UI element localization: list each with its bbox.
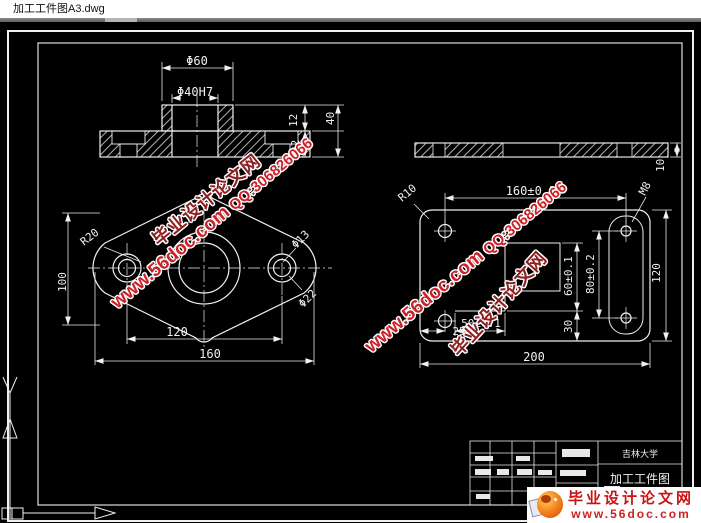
- titleblock-drawing-title: 加工工件图: [610, 472, 670, 486]
- dim-step-height: 12: [287, 114, 300, 127]
- logo-site-name: 毕业设计论文网: [568, 491, 694, 506]
- titleblock-university: 吉林大学: [622, 448, 658, 459]
- dim-thickness: 10: [654, 159, 667, 172]
- dim-plate-corner-radius: R10: [396, 182, 420, 205]
- dim-dia-bore: Φ40H7: [177, 85, 213, 99]
- dim-cbore-dia: Φ22: [296, 287, 319, 310]
- ucs-icon: [2, 377, 115, 519]
- fish-icon: [537, 491, 563, 518]
- dim-step: 30: [562, 320, 575, 333]
- dim-total-height: 40: [324, 112, 337, 125]
- fish-book-icon: [529, 488, 563, 522]
- brand-logo: 毕业设计论文网 www.56doc.com: [527, 487, 701, 523]
- dim-plate-height: 120: [650, 263, 663, 283]
- dim-thread: M8: [636, 180, 654, 198]
- dim-plan-width: 160: [199, 347, 221, 361]
- plate-section-view: [415, 143, 668, 157]
- dim-plan-height: 100: [56, 272, 69, 292]
- dim-pocket-height: 60±0.1: [562, 256, 575, 296]
- fish-eye: [554, 498, 557, 501]
- dim-plate-width: 200: [523, 350, 545, 364]
- dim-slot-length: 80±0.2: [584, 254, 597, 294]
- dim-dia-boss: Φ60: [186, 54, 208, 68]
- logo-site-url: www.56doc.com: [571, 508, 691, 520]
- drawing-canvas[interactable]: Φ60 Φ40H7 12 22 40 R20 100 120 160 Φ13 Φ…: [0, 22, 701, 523]
- fish-fin: [541, 495, 551, 503]
- dim-corner-radius: R20: [78, 226, 102, 248]
- plate-section-dims: [670, 143, 681, 157]
- window-titlebar: 加工工件图A3.dwg: [0, 0, 701, 18]
- file-title: 加工工件图A3.dwg: [13, 3, 105, 15]
- dim-hole-spacing: 120: [166, 325, 188, 339]
